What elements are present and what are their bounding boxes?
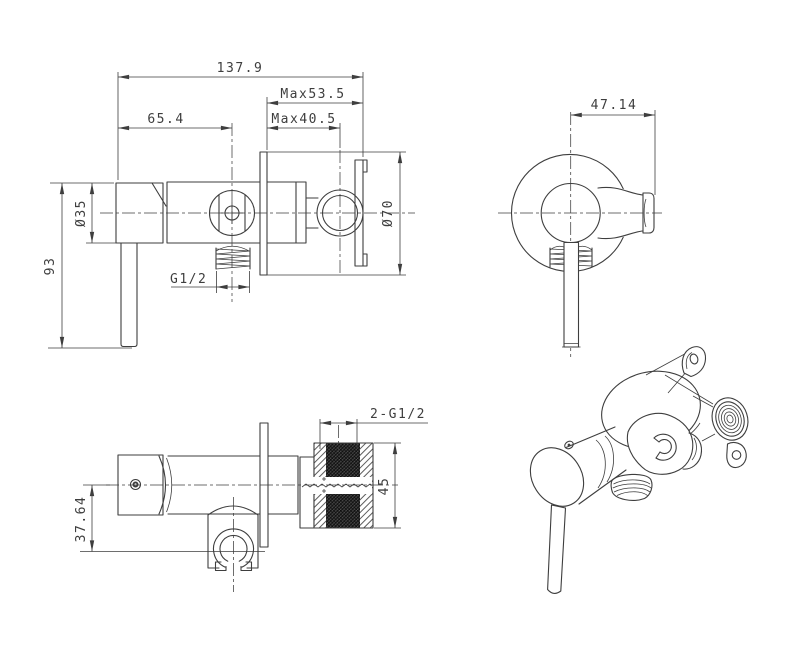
iso-handle-body [520, 427, 626, 516]
view-top-plan: 2-G1/2 45 37.64 [74, 407, 428, 592]
dim-label-47-14: 47.14 [591, 98, 638, 113]
dim-label-37-64: 37.64 [74, 496, 89, 543]
handle-lever-front [562, 243, 581, 348]
valve-body [167, 182, 318, 243]
technical-drawing-canvas: 137.9 Max53.5 Max40.5 65.4 Ø35 93 [0, 0, 800, 667]
dim-max-wall-to-center: Max40.5 [267, 112, 340, 148]
wall-plate-edge [260, 152, 267, 275]
iso-inlet-socket [707, 393, 754, 445]
dim-label-dia-35: Ø35 [74, 199, 89, 227]
iso-handle-lever [548, 505, 566, 593]
iso-bottom-mounting-ear [727, 442, 746, 467]
iso-outlet-thread [611, 474, 652, 500]
dim-label-g12: G1/2 [170, 272, 207, 287]
dim-label-dia-70: Ø70 [381, 199, 396, 227]
inlet-union [300, 443, 373, 528]
dim-label-93: 93 [43, 257, 58, 276]
dim-plate-diameter: Ø70 [261, 152, 406, 275]
dim-handle-face-to-center: 65.4 [118, 112, 232, 128]
dim-label-45: 45 [377, 477, 392, 496]
iso-top-mounting-ear [682, 347, 705, 377]
set-screw [131, 480, 141, 490]
dim-label-overall-width: 137.9 [217, 61, 264, 76]
dim-union-height: 45 [374, 443, 401, 528]
view-isometric [520, 347, 754, 594]
view-side-elevation: 137.9 Max53.5 Max40.5 65.4 Ø35 93 [43, 61, 415, 348]
dim-label-2-g12: 2-G1/2 [370, 407, 426, 422]
outlet-thread [216, 246, 250, 269]
dim-label-65-4: 65.4 [147, 112, 184, 127]
dim-label-max-53-5: Max53.5 [280, 87, 345, 102]
dim-center-to-holder-tip: 47.14 [571, 98, 655, 195]
dim-label-max-40-5: Max40.5 [271, 112, 336, 127]
handle-lever-rod [121, 243, 137, 347]
view-front-elevation: 47.14 [498, 98, 662, 357]
dim-center-to-holder: 37.64 [74, 485, 110, 552]
shower-holder-top [208, 506, 258, 571]
dim-outlet-thread: G1/2 [170, 271, 250, 293]
technical-drawing-page: 137.9 Max53.5 Max40.5 65.4 Ø35 93 [0, 0, 800, 667]
